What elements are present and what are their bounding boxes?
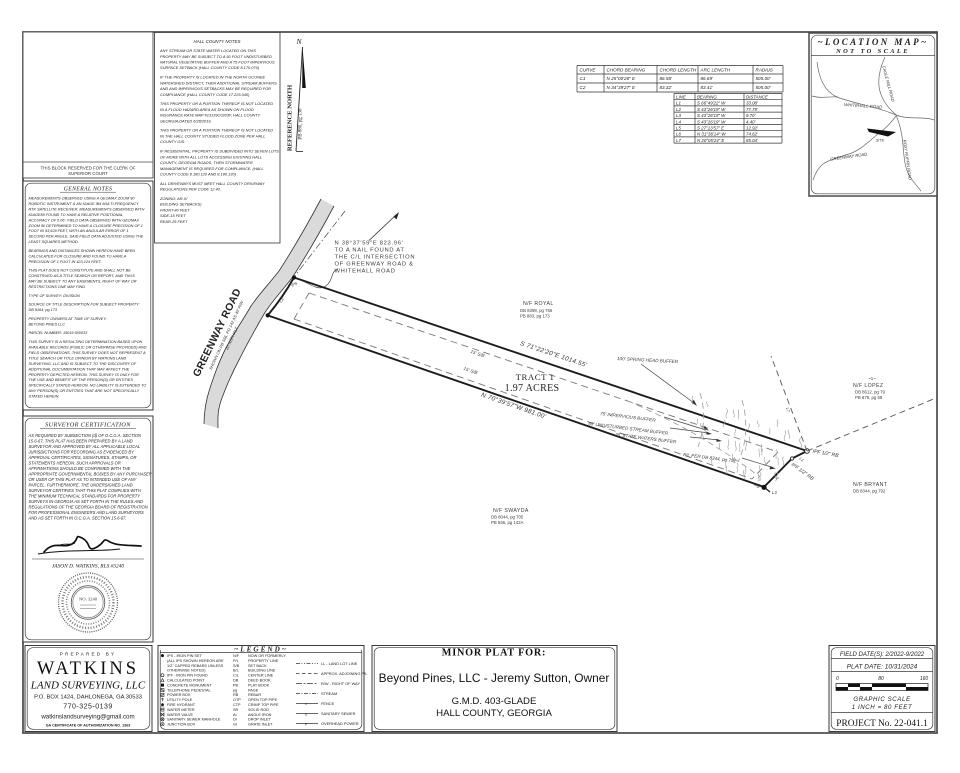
svg-text:N/F SWAYDA: N/F SWAYDA [493,508,529,514]
svg-text:83.41': 83.41' [701,85,713,90]
svg-text:ARC LENGTH: ARC LENGTH [700,68,731,73]
svg-text:N/F BRYANT: N/F BRYANT [853,482,888,488]
svg-text:85.04': 85.04' [746,138,758,143]
svg-text:FENCE: FENCE [321,701,335,706]
svg-text:N 25°00'28" E: N 25°00'28" E [607,76,637,81]
svg-text:R/W - RIGHT OF WAY: R/W - RIGHT OF WAY [321,681,360,686]
svg-text:CURVE: CURVE [580,68,597,73]
svg-text:1 INCH = 80 FEET: 1 INCH = 80 FEET [852,704,913,711]
svg-text:770-325-0139: 770-325-0139 [63,704,113,711]
svg-text:L5: L5 [676,126,681,131]
svg-text:TRACT 1: TRACT 1 [516,372,555,382]
svg-text:9.70': 9.70' [746,113,756,118]
svg-text:GENERAL NOTES: GENERAL NOTES [64,187,112,193]
svg-text:0: 0 [836,676,839,682]
svg-text:N/F ROYAL: N/F ROYAL [523,301,554,307]
svg-text:PB 880, pg 138: PB 880, pg 138 [299,108,304,140]
svg-text:watkinslandsurveying@gmail.com: watkinslandsurveying@gmail.com [40,714,134,721]
svg-text:APPROX. ADJOINING P/L: APPROX. ADJOINING P/L [321,671,368,676]
svg-text:33.08': 33.08' [746,101,758,106]
svg-text:505.00': 505.00' [756,85,771,90]
svg-text:DB 8612, pg 79PB 879, pg 58: DB 8612, pg 79PB 879, pg 58 [855,390,885,400]
svg-text:NO. 3240: NO. 3240 [79,597,98,602]
svg-text:S 27°13'57" E: S 27°13'57" E [697,126,724,131]
svg-text:FIELD DATE(S): 2/2022-9/2022: FIELD DATE(S): 2/2022-9/2022 [840,652,925,658]
svg-text:SITE: SITE [876,139,885,143]
svg-text:LAND SURVEYING, LLC: LAND SURVEYING, LLC [30,680,146,692]
svg-text:PREPARED BY: PREPARED BY [60,652,117,657]
svg-text:86.58': 86.58' [660,76,672,81]
svg-text:LINE: LINE [676,95,686,100]
svg-text:L3: L3 [772,490,777,495]
svg-text:74.62': 74.62' [746,132,758,137]
svg-text:PROJECT No. 22-041.1: PROJECT No. 22-041.1 [836,719,928,729]
svg-text:DISTANCE: DISTANCE [746,95,768,100]
svg-text:DB 8344, pg 792: DB 8344, pg 792 [853,489,886,494]
svg-text:Beyond Pines, LLC - Jeremy Sut: Beyond Pines, LLC - Jeremy Sutton, Owner [379,671,610,685]
svg-text:G.M.D. 403-GLADE: G.M.D. 403-GLADE [452,696,537,707]
svg-text:SANITARY SEWER: SANITARY SEWER [321,711,356,716]
svg-text:~LOCATION MAP~: ~LOCATION MAP~ [817,37,928,47]
svg-text:GA CERTIFICATE OF AUTHORIZATIO: GA CERTIFICATE OF AUTHORIZATION NO. 1363 [46,724,131,728]
svg-text:CHORD LENGTH: CHORD LENGTH [660,68,697,73]
svg-text:RADIUS: RADIUS [756,68,774,73]
svg-text:WATKINS: WATKINS [37,659,139,679]
svg-text:GRAPHIC SCALE: GRAPHIC SCALE [853,696,911,703]
svg-text:JASON D. WATKINS, RLS #3240: JASON D. WATKINS, RLS #3240 [52,564,125,570]
svg-text:PLAT DATE: 10/31/2024: PLAT DATE: 10/31/2024 [847,664,918,671]
svg-text:BEARING: BEARING [697,95,717,100]
svg-text:CHORD BEARING: CHORD BEARING [607,68,646,73]
svg-text:L6: L6 [676,132,681,137]
svg-text:REFERENCE NORTH: REFERENCE NORTH [287,84,294,151]
svg-text:SURVEYOR CERTIFICATION: SURVEYOR CERTIFICATION [45,422,131,429]
svg-text:L3: L3 [676,113,681,118]
svg-text:L1: L1 [676,101,681,106]
svg-text:HALL COUNTY NOTES: HALL COUNTY NOTES [194,39,241,44]
svg-text:OVERHEAD POWER: OVERHEAD POWER [321,721,359,726]
svg-text:HALL COUNTY, GEORGIA: HALL COUNTY, GEORGIA [436,708,552,719]
svg-text:S 66°49'22" W: S 66°49'22" W [697,101,726,106]
svg-text:N 31°36'14" W: N 31°36'14" W [697,132,726,137]
svg-text:N 34°39'27" E: N 34°39'27" E [607,85,637,90]
svg-text:S 43°26'19" W: S 43°26'19" W [697,119,726,124]
svg-text:L4: L4 [676,119,681,124]
svg-text:N 20°05'24" E: N 20°05'24" E [697,138,724,143]
svg-text:P.O. BOX 1424, DAHLONEGA, GA 3: P.O. BOX 1424, DAHLONEGA, GA 30533 [34,695,142,701]
svg-text:NOT TO SCALE: NOT TO SCALE [835,48,910,55]
svg-text:505.00': 505.00' [756,76,771,81]
svg-text:86.69': 86.69' [701,76,713,81]
svg-text:LL - LAND LOT LINE: LL - LAND LOT LINE [321,661,358,666]
svg-text:77.79': 77.79' [746,107,758,112]
svg-text:1.97 ACRES: 1.97 ACRES [505,383,560,394]
svg-text:S 43°26'19" W: S 43°26'19" W [697,107,726,112]
svg-text:x: x [305,702,307,706]
svg-text:DB 9398, pg 756PB 883, pg 173: DB 9398, pg 756PB 883, pg 173 [520,308,553,319]
svg-text:S 43°26'19" W: S 43°26'19" W [697,113,726,118]
svg-text:N/F LOPEZ: N/F LOPEZ [853,383,883,389]
svg-text:80: 80 [878,676,884,682]
svg-text:AS REQUIRED BY SUBSECTION (d): AS REQUIRED BY SUBSECTION (d) OF O.C.G.A… [28,433,152,521]
svg-text:160: 160 [920,676,929,682]
svg-text:L2: L2 [676,107,681,112]
svg-text:DB 8044, pg 705PB 556, pg 142A: DB 8044, pg 705PB 556, pg 142A [491,515,524,526]
svg-text:STREAM: STREAM [321,691,337,696]
svg-text:~1~: ~1~ [868,376,876,381]
svg-text:C2: C2 [580,85,586,90]
svg-text:~LEGEND~: ~LEGEND~ [234,645,288,653]
svg-text:MINOR PLAT FOR:: MINOR PLAT FOR: [442,648,546,659]
svg-text:C1: C1 [580,76,586,81]
svg-text:12.92': 12.92' [746,126,758,131]
svg-text:4.40': 4.40' [746,119,756,124]
svg-text:83.32': 83.32' [660,85,672,90]
svg-text:N: N [295,37,302,46]
svg-text:L7: L7 [676,138,681,143]
